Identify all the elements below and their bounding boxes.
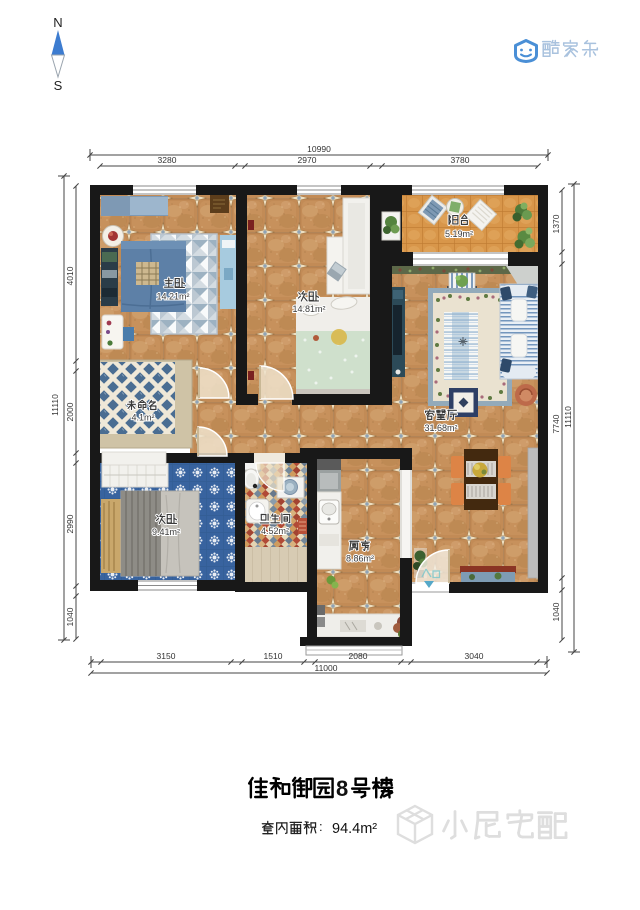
svg-text:1040: 1040 bbox=[65, 607, 75, 626]
svg-text:1040: 1040 bbox=[551, 602, 561, 621]
svg-text:3780: 3780 bbox=[451, 155, 470, 165]
svg-text::: : bbox=[319, 819, 323, 834]
svg-text:3040: 3040 bbox=[465, 651, 484, 661]
svg-text:S: S bbox=[54, 78, 63, 93]
svg-text:4.52m²: 4.52m² bbox=[261, 526, 289, 536]
svg-text:2970: 2970 bbox=[298, 155, 317, 165]
svg-text:8.86m²: 8.86m² bbox=[346, 554, 374, 564]
svg-text:11110: 11110 bbox=[50, 394, 60, 416]
svg-text:11110: 11110 bbox=[563, 406, 573, 428]
svg-text:4010: 4010 bbox=[65, 266, 75, 285]
svg-text:31.68m²: 31.68m² bbox=[424, 423, 457, 433]
svg-text:8: 8 bbox=[336, 776, 348, 801]
svg-text:5.19m²: 5.19m² bbox=[445, 229, 473, 239]
svg-text:3280: 3280 bbox=[158, 155, 177, 165]
svg-text:94.4m²: 94.4m² bbox=[332, 821, 377, 837]
svg-text:3150: 3150 bbox=[157, 651, 176, 661]
svg-text:1370: 1370 bbox=[551, 214, 561, 233]
svg-text:2080: 2080 bbox=[349, 651, 368, 661]
svg-text:10990: 10990 bbox=[307, 144, 331, 154]
svg-text:11000: 11000 bbox=[314, 663, 337, 673]
svg-text:2990: 2990 bbox=[65, 514, 75, 533]
svg-text:9.41m²: 9.41m² bbox=[152, 527, 180, 537]
svg-text:4.1m²: 4.1m² bbox=[131, 413, 154, 423]
svg-text:7740: 7740 bbox=[551, 414, 561, 433]
svg-text:14.81m²: 14.81m² bbox=[292, 304, 325, 314]
svg-text:14.21m²: 14.21m² bbox=[156, 292, 189, 302]
svg-text:2000: 2000 bbox=[65, 402, 75, 421]
svg-text:1510: 1510 bbox=[264, 651, 283, 661]
svg-text:N: N bbox=[53, 15, 62, 30]
